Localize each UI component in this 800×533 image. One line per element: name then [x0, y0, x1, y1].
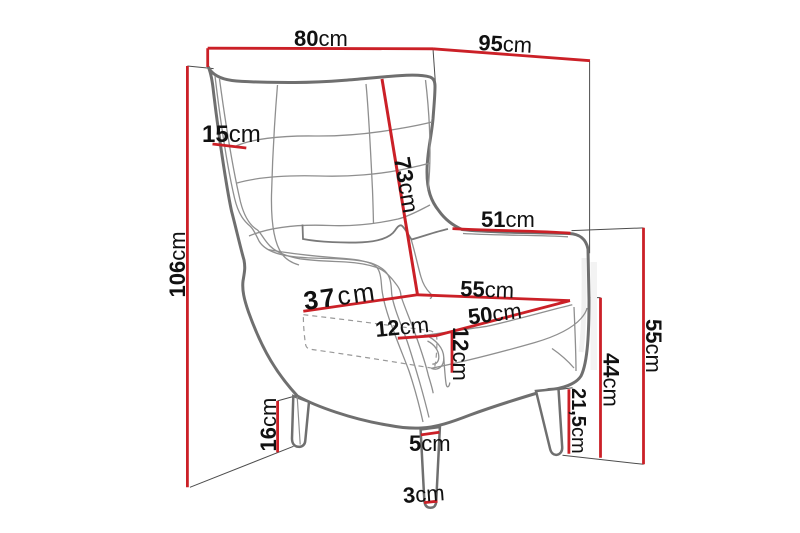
svg-text:15cm: 15cm [202, 121, 261, 148]
svg-text:80cm: 80cm [294, 26, 348, 51]
svg-text:106cm: 106cm [165, 231, 190, 297]
svg-text:16cm: 16cm [256, 398, 281, 452]
svg-text:51cm: 51cm [481, 207, 535, 232]
svg-text:5cm: 5cm [409, 431, 451, 456]
svg-text:3cm: 3cm [402, 480, 445, 508]
svg-text:95cm: 95cm [478, 30, 533, 58]
svg-text:12cm: 12cm [374, 312, 430, 342]
svg-text:55cm: 55cm [641, 319, 666, 373]
svg-text:44cm: 44cm [599, 353, 624, 407]
svg-text:12cm: 12cm [448, 327, 473, 381]
svg-text:21,5cm: 21,5cm [567, 388, 589, 454]
